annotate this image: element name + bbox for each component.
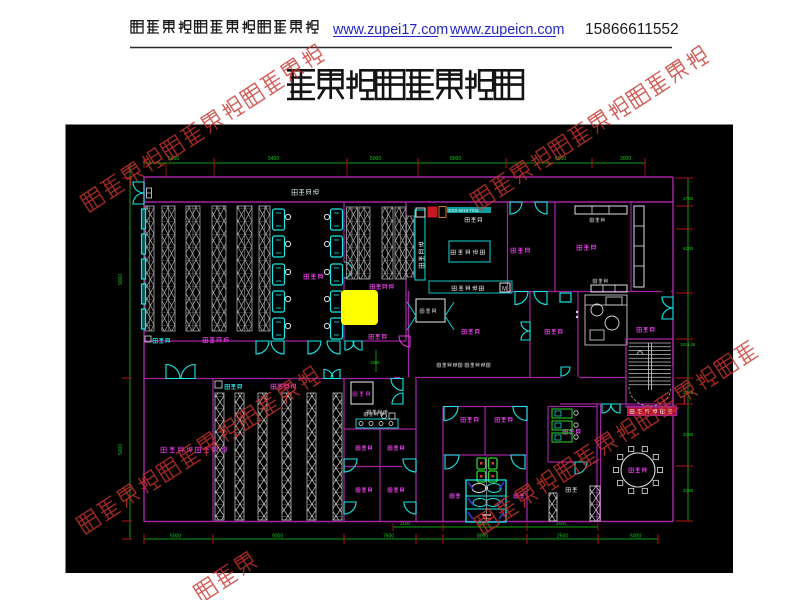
- svg-text:5000: 5000: [170, 534, 181, 540]
- svg-text:2700: 2700: [683, 196, 694, 201]
- svg-text:8000: 8000: [450, 156, 461, 162]
- svg-text:M: M: [502, 287, 507, 293]
- svg-text:3000: 3000: [620, 156, 631, 162]
- svg-text:5400: 5400: [268, 156, 279, 162]
- svg-text:4000: 4000: [683, 432, 694, 437]
- svg-text:8000: 8000: [477, 534, 488, 540]
- svg-text:5000: 5000: [630, 534, 641, 540]
- svg-text:6100: 6100: [683, 246, 694, 251]
- svg-text:1500: 1500: [370, 360, 380, 365]
- svg-text:3015-5010-7015: 3015-5010-7015: [448, 208, 479, 213]
- svg-text:www.zupei17.com: www.zupei17.com: [332, 22, 448, 38]
- svg-text:9000: 9000: [272, 534, 283, 540]
- svg-text:2500: 2500: [557, 534, 568, 540]
- svg-text:www.zupeicn.com: www.zupeicn.com: [449, 22, 564, 38]
- svg-text:7500: 7500: [383, 534, 394, 540]
- svg-text:4000: 4000: [683, 488, 694, 493]
- svg-text:9000: 9000: [118, 274, 124, 285]
- svg-text:5000: 5000: [118, 444, 124, 455]
- svg-text:5000: 5000: [370, 156, 381, 162]
- svg-text:15866611552: 15866611552: [585, 21, 679, 38]
- svg-text:1824.36: 1824.36: [680, 342, 696, 347]
